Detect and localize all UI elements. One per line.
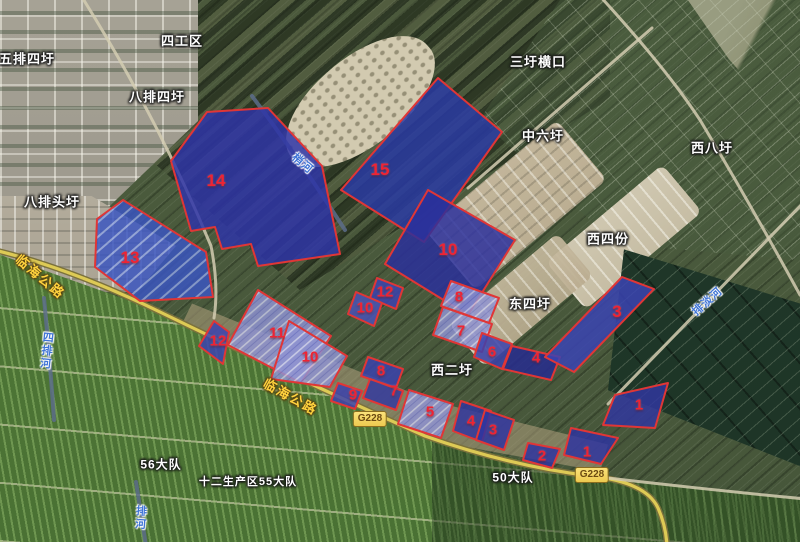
parcel-number: 5 bbox=[426, 404, 434, 421]
river-label: 排河 bbox=[131, 504, 149, 531]
parcel-number: 10 bbox=[439, 240, 458, 260]
parcel-number: 13 bbox=[121, 248, 140, 268]
parcel-number: 1 bbox=[583, 444, 591, 461]
road-badge-g228: G228 bbox=[575, 467, 609, 483]
labels-layer: 14151312111012101087643879543211五排四圩四工区八… bbox=[0, 0, 800, 542]
parcel-number: 6 bbox=[488, 344, 496, 361]
satellite-map[interactable]: 14151312111012101087643879543211五排四圩四工区八… bbox=[0, 0, 800, 542]
place-label: 东四圩 bbox=[509, 294, 551, 313]
place-label: 五排四圩 bbox=[0, 49, 55, 68]
parcel-number: 3 bbox=[612, 302, 621, 322]
place-label: 西二圩 bbox=[431, 360, 473, 379]
parcel-number: 2 bbox=[538, 448, 546, 465]
place-label: 八排四圩 bbox=[129, 87, 185, 106]
place-label: 中六圩 bbox=[522, 126, 564, 145]
parcel-number: 9 bbox=[349, 387, 357, 404]
parcel-number: 10 bbox=[302, 349, 319, 366]
place-label: 西四份 bbox=[587, 229, 629, 248]
place-label: 十二生产区55大队 bbox=[199, 473, 297, 489]
parcel-number: 12 bbox=[377, 284, 394, 301]
parcel-number: 8 bbox=[377, 363, 385, 380]
road-name-label: 临海公路 bbox=[260, 373, 322, 419]
parcel-number: 12 bbox=[210, 333, 227, 350]
road-name-label: 临海公路 bbox=[12, 249, 70, 302]
river-label: 排淡河 bbox=[688, 283, 725, 319]
parcel-number: 10 bbox=[357, 300, 374, 317]
parcel-number: 4 bbox=[532, 350, 540, 367]
river-label: 梢河 bbox=[289, 149, 318, 177]
place-label: 四工区 bbox=[161, 31, 203, 50]
parcel-number: 3 bbox=[489, 422, 497, 439]
parcel-number: 1 bbox=[635, 397, 643, 414]
place-label: 56大队 bbox=[140, 456, 181, 473]
river-label: 四排河 bbox=[36, 331, 56, 371]
road-badge-g228: G228 bbox=[353, 411, 387, 427]
parcel-number: 11 bbox=[269, 325, 285, 342]
place-label: 50大队 bbox=[492, 469, 533, 486]
parcel-number: 8 bbox=[455, 289, 463, 306]
parcel-number: 7 bbox=[390, 383, 398, 400]
parcel-number: 7 bbox=[457, 323, 465, 340]
parcel-number: 14 bbox=[207, 171, 226, 191]
place-label: 西八圩 bbox=[691, 138, 733, 157]
parcel-number: 15 bbox=[371, 160, 390, 180]
parcel-number: 4 bbox=[467, 413, 475, 430]
place-label: 三圩横口 bbox=[510, 52, 566, 71]
place-label: 八排头圩 bbox=[24, 192, 80, 211]
